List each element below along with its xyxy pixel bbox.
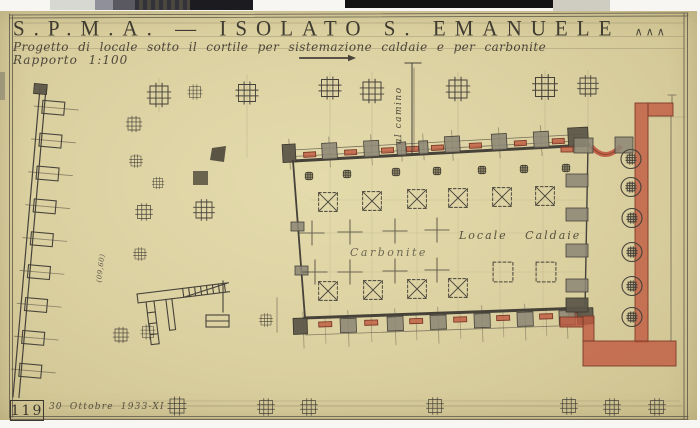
column-marker [520, 165, 529, 174]
column-marker [141, 325, 155, 339]
axis-cross [338, 260, 362, 284]
sheet-title-text: S.P.M.A. — ISOLATO S. EMANUELE [13, 16, 620, 41]
column-marker [260, 314, 273, 327]
footing-squares [319, 187, 556, 301]
ink-smudge [193, 171, 208, 185]
label-boiler-room: Locale Caldaie [459, 229, 581, 242]
footing-square [364, 281, 383, 300]
scan-shadow [0, 72, 5, 100]
sheet-number: 119 [11, 403, 44, 419]
column-marker [136, 204, 153, 221]
title-end-marks: ∧∧∧ [635, 26, 668, 38]
column-marker [562, 164, 571, 173]
axis-cross [425, 218, 449, 242]
scanned-drawing-sheet: S.P.M.A. — ISOLATO S. EMANUELE ∧∧∧ Proge… [0, 0, 700, 428]
column-marker [113, 327, 129, 343]
reference-arrow-icon [300, 55, 356, 61]
footing-square [319, 193, 338, 212]
footing-square [536, 187, 555, 206]
column-marker [478, 166, 487, 175]
staircase [137, 281, 277, 346]
sheet-number-box: 119 [10, 400, 44, 421]
axis-cross [383, 259, 407, 283]
hall-left-wall [291, 161, 308, 318]
sheet-title: S.P.M.A. — ISOLATO S. EMANUELE ∧∧∧ [13, 16, 668, 42]
date-note: 30 Ottobre 1933-XI [49, 402, 165, 412]
footing-square [493, 188, 512, 207]
axis-cross [425, 258, 449, 282]
column-marker [305, 172, 314, 181]
column-marker [126, 116, 142, 132]
arch-pier [615, 137, 633, 153]
hall-bottom-wall [293, 302, 594, 349]
footing-square [319, 282, 338, 301]
column-marker [343, 170, 352, 179]
column-marker [433, 167, 442, 176]
scale-note: Rapporto 1:100 [13, 53, 128, 67]
retaining-wall [7, 83, 80, 400]
column-marker [188, 85, 202, 99]
axis-cross [303, 260, 327, 284]
column-marker [194, 200, 215, 221]
ink-smudge [210, 146, 226, 162]
sheet-subtitle: Progetto di locale sotto il cortile per … [13, 40, 546, 54]
label-flue: al camino [394, 86, 404, 144]
column-marker [134, 248, 147, 261]
corridor-lines [668, 95, 676, 341]
axis-cross [383, 219, 407, 243]
column-marker [152, 177, 164, 189]
arch-pier [574, 138, 593, 153]
column-marker [130, 155, 143, 168]
top-wall-columns [305, 164, 571, 181]
label-coal-room: Carbonite [350, 246, 428, 259]
axis-cross [338, 220, 362, 244]
column-marker [392, 168, 401, 177]
